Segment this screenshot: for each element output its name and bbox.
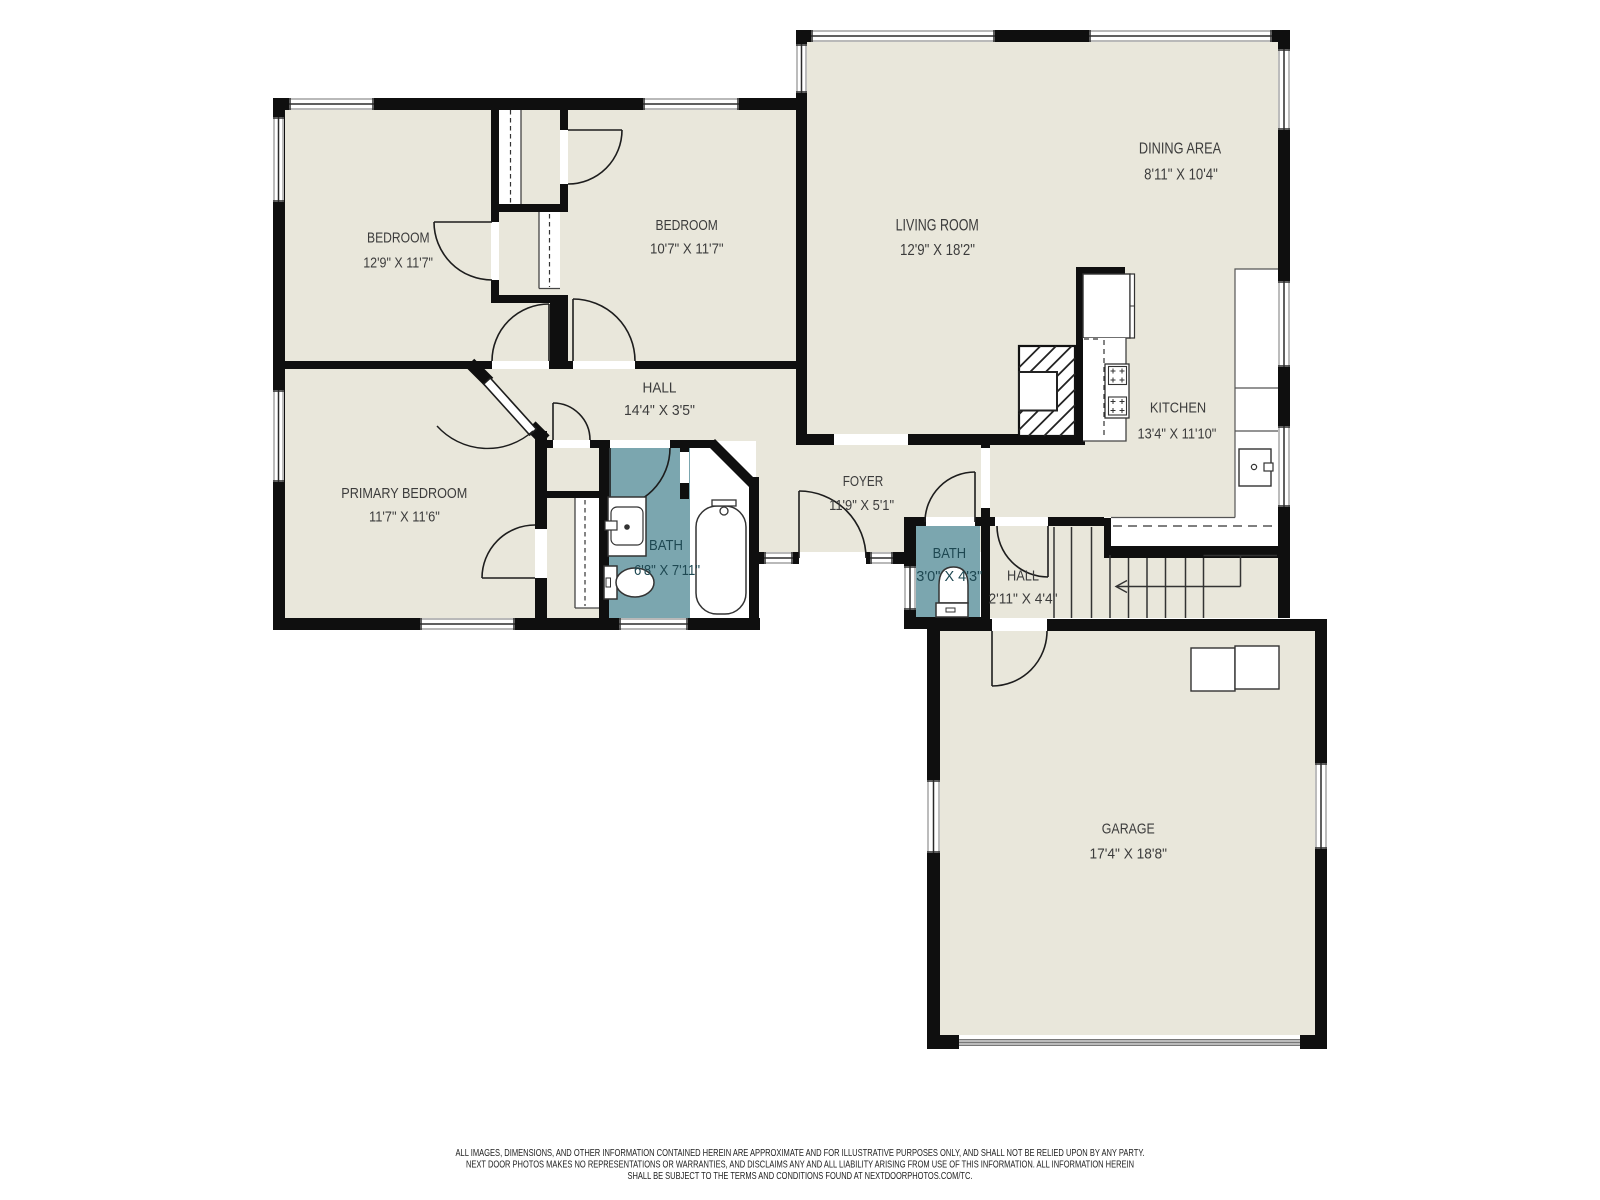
svg-text:11'9" X 5'1": 11'9" X 5'1" <box>829 498 894 514</box>
svg-text:11'7" X 11'6": 11'7" X 11'6" <box>369 510 440 526</box>
svg-text:13'4" X 11'10": 13'4" X 11'10" <box>1138 427 1217 443</box>
svg-text:KITCHEN: KITCHEN <box>1150 399 1206 416</box>
svg-text:17'4" X 18'8": 17'4" X 18'8" <box>1090 847 1168 863</box>
svg-text:LIVING ROOM: LIVING ROOM <box>896 217 979 235</box>
svg-text:14'4" X 3'5": 14'4" X 3'5" <box>624 403 695 419</box>
svg-text:SHALL BE SUBJECT TO THE TERMS: SHALL BE SUBJECT TO THE TERMS AND CONDIT… <box>628 1170 973 1182</box>
svg-text:BATH: BATH <box>933 546 967 562</box>
svg-text:HALL: HALL <box>1007 569 1039 585</box>
svg-text:12'9" X 18'2": 12'9" X 18'2" <box>900 242 975 259</box>
svg-text:BATH: BATH <box>649 538 683 554</box>
svg-text:DINING AREA: DINING AREA <box>1139 141 1221 158</box>
svg-text:8'11" X 10'4": 8'11" X 10'4" <box>1144 167 1218 184</box>
svg-text:6'8" X 7'11": 6'8" X 7'11" <box>634 563 700 579</box>
svg-text:PRIMARY BEDROOM: PRIMARY BEDROOM <box>341 486 467 502</box>
svg-text:12'9" X 11'7": 12'9" X 11'7" <box>363 256 433 272</box>
svg-text:GARAGE: GARAGE <box>1102 821 1155 838</box>
svg-text:HALL: HALL <box>643 381 677 397</box>
svg-text:ALL IMAGES, DIMENSIONS, AND OT: ALL IMAGES, DIMENSIONS, AND OTHER INFORM… <box>456 1147 1145 1159</box>
svg-text:BEDROOM: BEDROOM <box>656 218 718 234</box>
svg-text:BEDROOM: BEDROOM <box>367 230 430 246</box>
svg-text:10'7" X 11'7": 10'7" X 11'7" <box>650 242 724 258</box>
svg-text:NEXT DOOR PHOTOS MAKES NO REPR: NEXT DOOR PHOTOS MAKES NO REPRESENTATION… <box>466 1159 1134 1171</box>
svg-text:3'0" X 4'3": 3'0" X 4'3" <box>916 569 982 585</box>
svg-text:2'11" X 4'4": 2'11" X 4'4" <box>989 592 1058 608</box>
svg-text:FOYER: FOYER <box>843 474 884 490</box>
